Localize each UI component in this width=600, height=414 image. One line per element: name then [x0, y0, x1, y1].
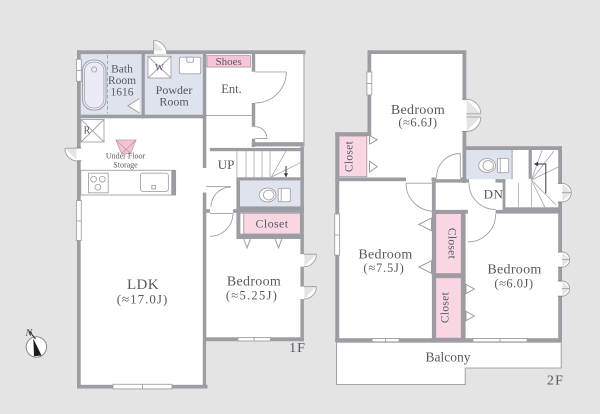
- svg-text:(≈6.6J): (≈6.6J): [398, 116, 437, 130]
- svg-text:Closet: Closet: [446, 228, 458, 260]
- svg-text:Bedroom: Bedroom: [227, 275, 281, 290]
- svg-text:Shoes: Shoes: [216, 56, 242, 68]
- svg-text:UP: UP: [218, 157, 235, 172]
- svg-text:(≈7.5J): (≈7.5J): [363, 261, 404, 275]
- svg-text:(≈6.0J): (≈6.0J): [494, 277, 533, 291]
- svg-text:Closet: Closet: [440, 291, 452, 323]
- svg-text:Bath: Bath: [111, 64, 133, 76]
- svg-text:2F: 2F: [547, 374, 564, 389]
- svg-text:N: N: [24, 328, 33, 339]
- svg-text:Under Floor: Under Floor: [106, 152, 146, 161]
- svg-text:Room: Room: [159, 95, 189, 109]
- svg-text:Balcony: Balcony: [426, 350, 471, 365]
- svg-text:Storage: Storage: [113, 161, 138, 170]
- svg-text:(≈17.0J): (≈17.0J): [117, 292, 169, 307]
- svg-text:DN: DN: [484, 187, 504, 202]
- svg-text:Room: Room: [108, 75, 136, 87]
- svg-text:Ent.: Ent.: [221, 82, 241, 96]
- svg-text:Closet: Closet: [344, 140, 356, 172]
- svg-text:1616: 1616: [111, 87, 134, 99]
- svg-text:Closet: Closet: [255, 217, 288, 231]
- svg-text:R: R: [84, 126, 91, 137]
- svg-text:1F: 1F: [289, 341, 306, 356]
- svg-text:Bedroom: Bedroom: [487, 263, 541, 278]
- svg-text:W: W: [155, 64, 164, 74]
- svg-text:(≈5.25J): (≈5.25J): [226, 289, 278, 303]
